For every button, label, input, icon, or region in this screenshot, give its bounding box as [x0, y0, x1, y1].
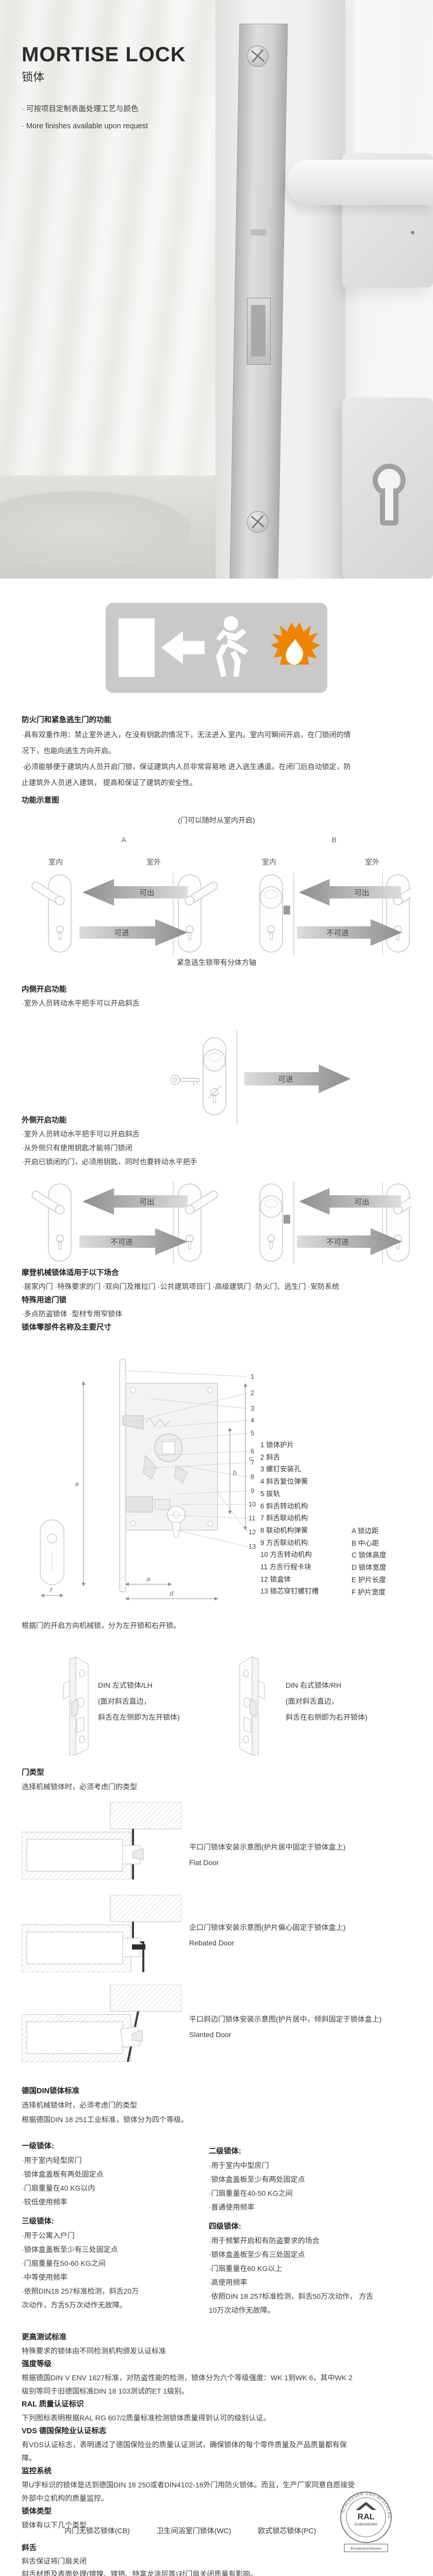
caption-cn: 平口斜边门锁体安装示意图(护片居中，倾斜固定于锁体盒上)	[189, 2011, 381, 2027]
info-paragraph: 斜舌保证将门扇关闭	[22, 2555, 357, 2568]
cert-paragraph: 下列图标表明根据RAL RG 607/2质量标准检测锁体质量得到认可的级别认证。	[22, 2411, 357, 2425]
lh-rh-section: DIN 左式锁体/LH (面对斜舌直边， 斜舌在左侧即为左开锁体) DIN 右式…	[22, 1653, 411, 1758]
svg-text:6: 6	[251, 1447, 254, 1455]
bullet: ·室外人员转动水平把手可以开启斜舌	[22, 996, 357, 1010]
lh-text: DIN 左式锁体/LH (面对斜舌直边， 斜舌在左侧即为左开锁体)	[98, 1677, 180, 1725]
legend-item: 1 锁体护片	[260, 1439, 319, 1451]
faceplate-screw-top	[247, 45, 269, 67]
room-label-outdoor: 室外	[357, 857, 388, 867]
info-heading: 斜舌	[22, 2542, 411, 2555]
mortise-lock-catalog-page: MORTISE LOCK 锁体 · 可按项目定制表面处理工艺与颜色 · More…	[0, 0, 433, 2576]
cert-paragraph: 有VDS认证标志，表明通过了德国保险业的质量认证测试，确保锁体的每个零件质量及产…	[22, 2438, 357, 2465]
section-heading: 防火门和紧急逃生门的功能	[22, 714, 411, 727]
page-title-block: MORTISE LOCK 锁体	[22, 43, 186, 84]
caption-cn: 企口门锁体安装示意图(护片偏心固定于锁体盒上)	[189, 1920, 345, 1935]
function-diagram-heading: 功能示意图	[22, 794, 411, 807]
lock-body-diagram-section: 1 2 3 4 5 6 7 8 9 10 11 12 13	[22, 1350, 411, 1618]
parts-legend-letters: A 锁边距 B 中心距 C 锁体高度 D 锁体宽度 E 护片长度 F 护片宽度	[352, 1525, 387, 1598]
lock-type-wc: 卫生间浴室门锁体(WC)	[157, 2526, 231, 2536]
legend-item: 7 斜舌联动机构	[260, 1512, 319, 1524]
svg-text:1: 1	[251, 1372, 254, 1380]
rebated-door-caption: 企口门锁体安装示意图(护片偏心固定于锁体盒上) Rebated Door	[189, 1920, 345, 1951]
legend-item: 4 斜舌复位弹簧	[260, 1476, 319, 1488]
legend-item: 8 联动机构弹簧	[260, 1524, 319, 1537]
svg-text:12: 12	[248, 1528, 256, 1536]
legend-item: D 锁体宽度	[352, 1562, 387, 1574]
svg-text:f: f	[50, 1586, 53, 1594]
flat-door-cross-section	[22, 1802, 181, 1879]
svg-text:2: 2	[251, 1389, 254, 1397]
rebated-door-diagram: 企口门锁体安装示意图(护片偏心固定于锁体盒上) Rebated Door	[22, 1895, 411, 1972]
cert-paragraph: 根据德国DIN V ENV 1627标准，对防盗性能的检测，锁体分为六个等级强度…	[22, 2371, 357, 2398]
svg-text:9: 9	[251, 1487, 254, 1495]
room-label-outdoor: 室外	[138, 857, 169, 867]
svg-text:8: 8	[251, 1473, 254, 1481]
usage-items: ·居家内门 ·特殊要求的门 ·双向门及推拉门 ·公共建筑项目门 ·高级建筑门 ·…	[22, 1280, 411, 1294]
grade-title: 三级锁体:	[22, 2214, 145, 2229]
section-heading: 摩登机械锁体适用于以下场合	[22, 1266, 411, 1280]
lock-body-cutaway-diagram: 1 2 3 4 5 6 7 8 9 10 11 12 13	[22, 1350, 279, 1615]
legend-item: 6 斜舌转动机构	[260, 1500, 319, 1513]
cert-heading: 监控系统	[22, 2465, 411, 2478]
grade-item: ·锁体盒盖板至少有两处固定点	[209, 2173, 369, 2187]
grade-item: ·用于室内中型房门	[209, 2159, 369, 2173]
bullet: ·开启已锁闭的门，必须用钥匙，同时也要转动水平把手	[22, 1155, 357, 1169]
grade-item: ·门扇重量在40 KG以内	[22, 2181, 151, 2195]
cert-heading: RAL 质量认证标识	[22, 2398, 411, 2411]
paragraph: 选择机械锁体时，必须考虑门的类型	[22, 1780, 357, 1794]
section-heading: 门类型	[22, 1766, 411, 1780]
door-frame	[355, 0, 398, 155]
grade-1-block: 一级锁体: ·用于室内轻型房门 ·锁体盒盖板有两处固定点 ·门扇重量在40 KG…	[22, 2139, 151, 2209]
grade-item: ·锁体盒盖板至少有三处固定点	[22, 2243, 145, 2257]
svg-text:c: c	[249, 1454, 253, 1462]
bolt-info-section: 斜舌 斜舌保证将门扇关闭 斜舌材质及表面处理(镀镍、镀铬、特富龙涂层等)对门扇关…	[22, 2542, 411, 2576]
hero-bullet-2: · More finishes available upon request	[22, 118, 148, 135]
caption-cn: 平口门锁体安装示意图(护片居中固定于锁体盒上)	[189, 1839, 345, 1855]
legend-item: E 护片长度	[352, 1574, 387, 1586]
grade-item: ·用于公寓入户门	[22, 2229, 145, 2243]
legend-item: 5 拔轨	[260, 1488, 319, 1500]
grade-item: ·较低使用频率	[22, 2195, 151, 2209]
label-a: A	[108, 836, 139, 844]
parts-legend-numbers: 1 锁体护片 2 斜舌 3 螺钉安装孔 4 斜舌复位弹簧 5 拔轨 6 斜舌转动…	[260, 1439, 319, 1598]
grade-item: ·高使用频率	[209, 2276, 374, 2290]
bullet: ·室外人员转动水平把手可以开启斜舌	[22, 1127, 357, 1141]
lh-title: DIN 左式锁体/LH	[98, 1677, 180, 1693]
svg-text:b: b	[233, 1469, 237, 1477]
lock-type-row: 内门无锁芯锁体(CB) 卫生间浴室门锁体(WC) 欧式锁芯锁体(PC)	[64, 2526, 316, 2536]
grade-item: ·用于频繁开启和有防盗要求的场合	[209, 2234, 374, 2248]
function-diagram-1-plates	[22, 872, 411, 957]
legend-item: C 锁体高度	[352, 1549, 387, 1562]
rh-text: DIN 右式锁体/RH (面对斜舌直边， 斜舌在右侧即为右开锁体)	[286, 1677, 368, 1725]
svg-text:3: 3	[251, 1404, 254, 1412]
flat-door-caption: 平口门锁体安装示意图(护片居中固定于锁体盒上) Flat Door	[189, 1839, 345, 1870]
grade-item: ·锁体盒盖板至少有三处固定点	[209, 2248, 374, 2262]
svg-text:11: 11	[248, 1514, 256, 1522]
rose-screw-dot	[411, 231, 414, 234]
legend-item: 13 锁芯穿钉螺钉槽	[260, 1585, 319, 1598]
svg-text:13: 13	[248, 1543, 256, 1550]
diagram-caption-bottom: 紧急逃生锁带有分体方轴	[0, 957, 433, 968]
room-label-indoor: 室内	[254, 857, 285, 867]
legend-item: F 护片宽度	[352, 1586, 387, 1599]
cert-paragraph: 带U字标识的锁体是达到德国DIN 18 250或者DIN4102-18外门用防火…	[22, 2478, 357, 2505]
grade-title: 四级锁体:	[209, 2219, 374, 2234]
hero-product-photo: MORTISE LOCK 锁体 · 可按项目定制表面处理工艺与颜色 · More…	[0, 0, 433, 579]
rh-line1: (面对斜舌直边，	[286, 1693, 368, 1709]
diagram-caption-top: (门可以随时从室内开启)	[0, 815, 433, 825]
rh-line2: 斜舌在右侧即为右开锁体)	[286, 1709, 368, 1725]
slanted-door-cross-section	[22, 1985, 181, 2062]
section-heading: 外侧开启功能	[22, 1114, 411, 1127]
paragraph: 选择机械锁体时，必须考虑门的类型	[22, 2098, 411, 2112]
legend-item: A 锁边距	[352, 1525, 387, 1537]
svg-text:a: a	[146, 1575, 150, 1583]
function-diagram-1: 可出 可进 可出 不可进	[22, 872, 411, 957]
svg-text:e: e	[75, 1480, 79, 1488]
grade-title: 二级锁体:	[209, 2144, 369, 2159]
lock-type-pc: 欧式锁芯锁体(PC)	[258, 2526, 316, 2536]
inner-open-section: 内侧开启功能 ·室外人员转动水平把手可以开启斜舌	[22, 983, 411, 1010]
section-heading: 德国DIN锁体标准	[22, 2084, 411, 2098]
door-type-section: 门类型 选择机械锁体时，必须考虑门的类型	[22, 1766, 411, 1794]
emergency-exit-sign	[106, 603, 327, 693]
parts-heading: 锁体零部件名称及主要尺寸	[22, 1321, 411, 1334]
section-heading: 内侧开启功能	[22, 983, 411, 996]
grade-2-block: 二级锁体: ·用于室内中型房门 ·锁体盒盖板至少有两处固定点 ·门扇重量在40-…	[209, 2144, 369, 2214]
lever-handle	[287, 160, 433, 205]
usage-section: 摩登机械锁体适用于以下场合 ·居家内门 ·特殊要求的门 ·双向门及推拉门 ·公共…	[22, 1266, 411, 1334]
grade-3-block: 三级锁体: ·用于公寓入户门 ·锁体盒盖板至少有三处固定点 ·门扇重量在50-6…	[22, 2214, 145, 2312]
bullet: ·从外侧只有使用钥匙才能将门锁闭	[22, 1141, 357, 1155]
page-subtitle: 锁体	[22, 68, 186, 84]
grade-item: ·门扇重量在60 KG以上	[209, 2262, 374, 2276]
svg-text:d: d	[170, 1589, 174, 1597]
grade-title: 一级锁体:	[22, 2139, 151, 2154]
din-standard-section: 德国DIN锁体标准 选择机械锁体时，必须考虑门的类型 根据德国DIN 18 25…	[22, 2084, 411, 2127]
legend-item: 3 螺钉安装孔	[260, 1463, 319, 1476]
grade-item: ·门扇重量在50-60 KG之间	[22, 2257, 145, 2270]
slanted-door-diagram: 平口斜边门锁体安装示意图(护片居中，倾斜固定于锁体盒上) Slanted Doo…	[22, 1985, 411, 2062]
page-title: MORTISE LOCK	[22, 43, 186, 66]
grade-item: ·门扇重量在40-50 KG之间	[209, 2187, 369, 2200]
fire-door-functions-section: 防火门和紧急逃生门的功能 ·具有双重作用：禁止室外进入，在没有钥匙的情况下，无法…	[22, 714, 411, 807]
latch-bolt	[251, 305, 265, 357]
grade-item: ·依照DIN 18 257标准检测，斜舌50万次动作， 方舌10万次动作无故障。	[209, 2290, 374, 2317]
room-label-indoor: 室内	[40, 857, 71, 867]
label-b: B	[319, 836, 349, 844]
function-diagram-2: 可出 不可进 可出 不可进	[22, 1181, 411, 1266]
svg-text:5: 5	[251, 1429, 254, 1437]
exit-door-icon	[119, 618, 155, 677]
svg-text:Gutezeichen: Gutezeichen	[355, 2522, 378, 2527]
rebated-door-cross-section	[22, 1895, 181, 1972]
lh-lock-drawing	[45, 1653, 94, 1756]
hero-bullet-1: · 可按项目定制表面处理工艺与颜色	[22, 101, 148, 118]
slanted-door-caption: 平口斜边门锁体安装示意图(护片居中，倾斜固定于锁体盒上) Slanted Doo…	[189, 2011, 381, 2042]
cert-heading: 强度等级	[22, 2358, 411, 2371]
faceplate-screw-bottom	[247, 511, 269, 533]
info-paragraph: 斜舌材质及表面处理(镀镍、镀铬、特富龙涂层等)对门扇关闭质量有影响。	[22, 2568, 357, 2576]
usage-items: ·多点防盗锁体 ·型材专用窄锁体	[22, 1307, 357, 1321]
cert-heading: 更高测试标准	[22, 2331, 411, 2344]
lh-line1: (面对斜舌直边，	[98, 1693, 180, 1709]
rh-title: DIN 右式锁体/RH	[286, 1677, 368, 1693]
outer-open-section: 外侧开启功能 ·室外人员转动水平把手可以开启斜舌 ·从外侧只有使用钥匙才能将门锁…	[22, 1114, 411, 1169]
legend-item: 9 方舌联动机构	[260, 1537, 319, 1549]
legend-item: B 中心距	[352, 1537, 387, 1550]
legend-item: 12 锁盒体	[260, 1573, 319, 1586]
caption-en: Rebated Door	[189, 1935, 345, 1951]
section-heading: 特殊用途门锁	[22, 1294, 411, 1307]
legend-item: 10 方舌转动机构	[260, 1549, 319, 1561]
grade-item: ·用于室内轻型房门	[22, 2154, 151, 2167]
paragraph: 根据德国DIN 18 251工业标准，锁体分为四个等级。	[22, 2112, 411, 2127]
svg-text:4: 4	[251, 1416, 254, 1424]
hero-bullets: · 可按项目定制表面处理工艺与颜色 · More finishes availa…	[22, 101, 148, 135]
keyhole-tail	[380, 488, 398, 526]
cert-heading: VDS 德国保险业认证标志	[22, 2425, 411, 2438]
handedness-note: 根据门的开启方向机械锁，分为左开锁和右开锁。	[22, 1619, 411, 1633]
faceplate-brand-mark	[251, 229, 266, 235]
caption-en: Flat Door	[189, 1855, 345, 1870]
grade-4-block: 四级锁体: ·用于频繁开启和有防盗要求的场合 ·锁体盒盖板至少有三处固定点 ·门…	[209, 2219, 374, 2317]
caption-en: Slanted Door	[189, 2027, 381, 2042]
flat-door-diagram: 平口门锁体安装示意图(护片居中固定于锁体盒上) Flat Door	[22, 1802, 411, 1879]
lock-type-cb: 内门无锁芯锁体(CB)	[64, 2526, 130, 2536]
rh-lock-drawing	[234, 1653, 283, 1756]
svg-text:10: 10	[248, 1500, 256, 1508]
grade-item: ·锁体盒盖板有两处固定点	[22, 2167, 151, 2181]
legend-item: 2 斜舌	[260, 1451, 319, 1464]
svg-text:RAL: RAL	[358, 2513, 375, 2521]
lh-line2: 斜舌在左侧即为左开锁体)	[98, 1709, 180, 1725]
paragraph: ·必须能够便于建筑内人员开启门锁，保证建筑内人员非常容易地 进入逃生通道。在闭门…	[22, 759, 357, 791]
cert-paragraph: 特殊要求的锁体由不同检测机构颁发认证标准	[22, 2344, 357, 2358]
paragraph: ·具有双重作用：禁止室外进入，在没有钥匙的情况下，无法进入 室内。室内可瞬间开启…	[22, 727, 357, 759]
grade-item: ·普通使用频率	[209, 2200, 369, 2214]
grade-item: ·依照DIN18 257标准检测，斜舌20万次动作，方舌5万次动作无故障。	[22, 2284, 145, 2312]
grade-item: ·中等使用频率	[22, 2270, 145, 2284]
function-diagram-2-plates	[22, 1181, 411, 1266]
legend-item: 11 方舌行程卡块	[260, 1561, 319, 1573]
